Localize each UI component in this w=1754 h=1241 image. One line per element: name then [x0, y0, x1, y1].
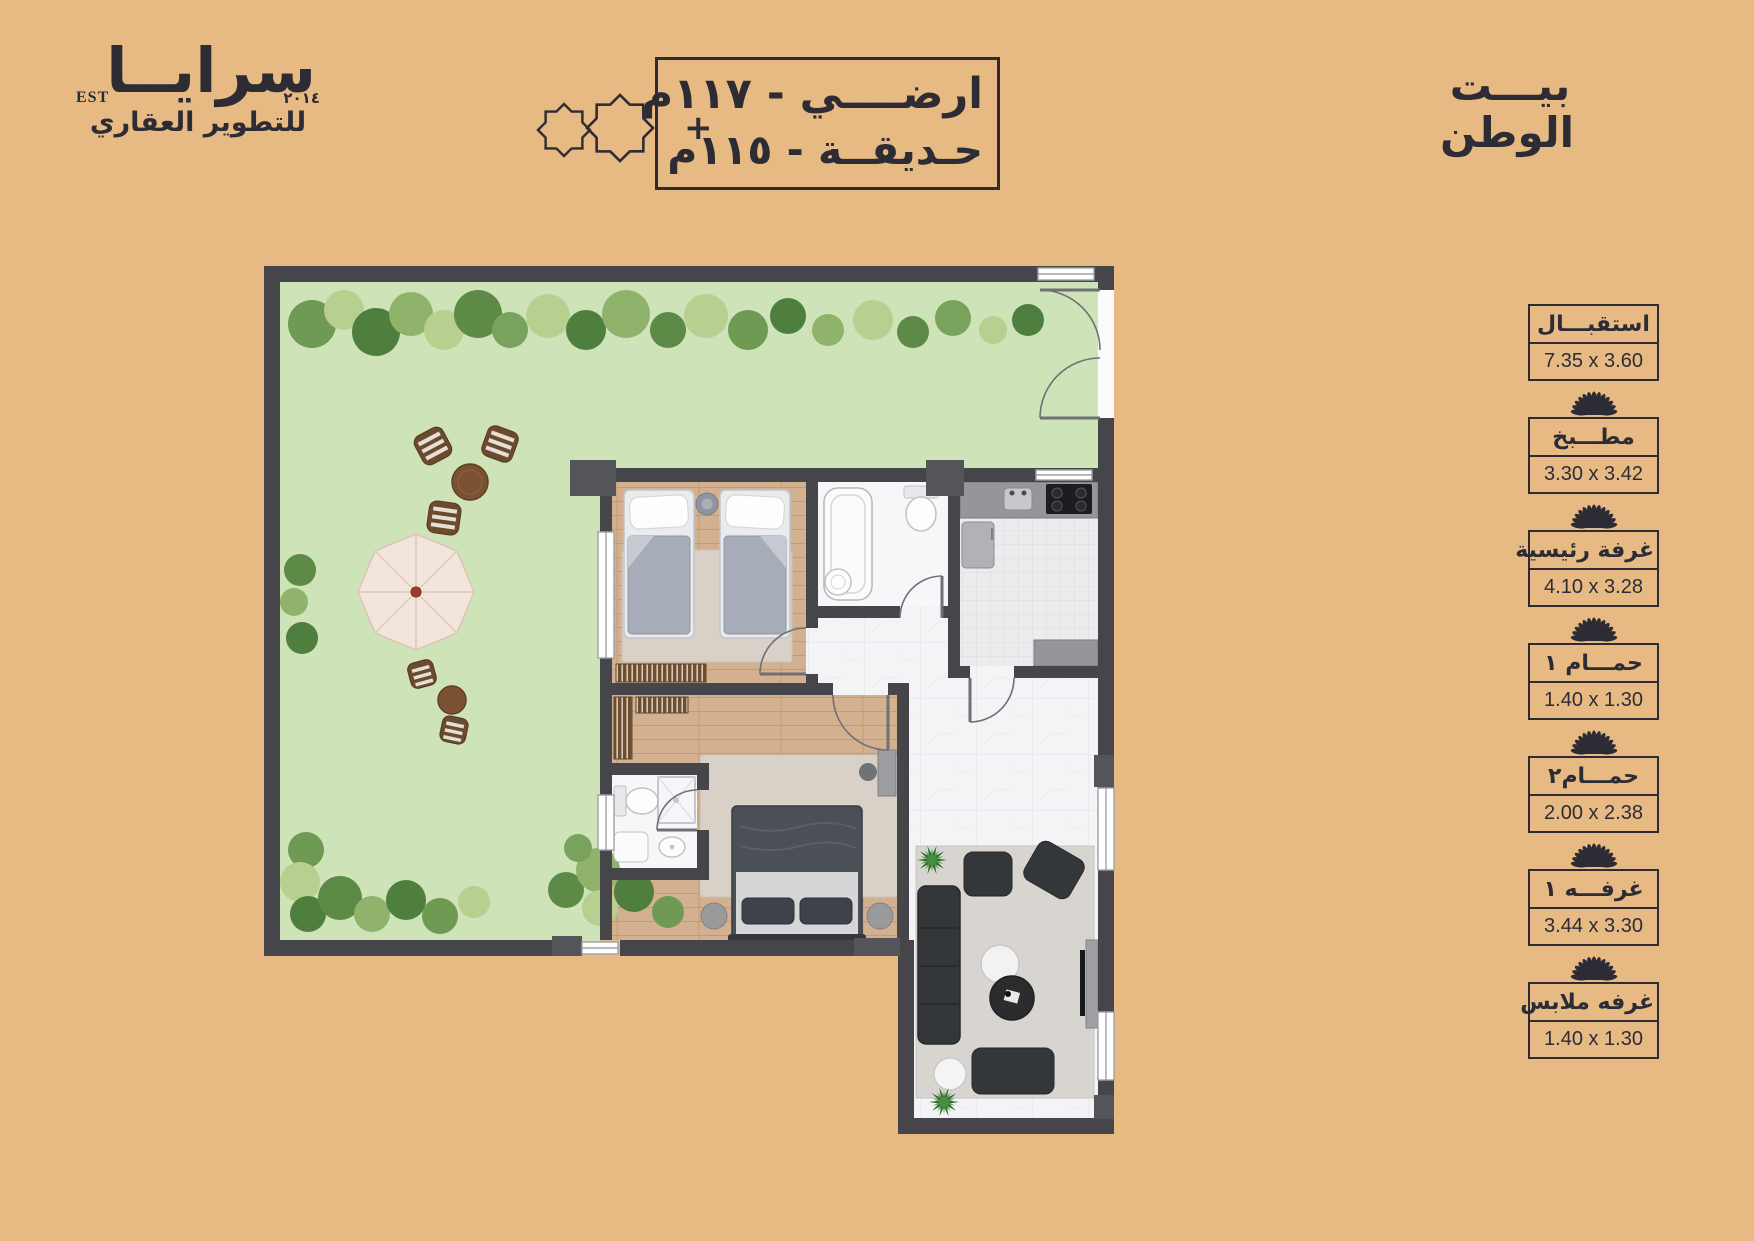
brand-line-1: بيـــت — [1446, 62, 1574, 109]
room-dimensions: 1.40 x 1.30 — [1530, 683, 1657, 718]
wardrobe — [616, 664, 706, 682]
fan-ornament-icon — [1528, 841, 1659, 868]
shower — [658, 777, 695, 823]
floor-plan — [248, 250, 1138, 1145]
room-name: غرفة رئيسية — [1530, 532, 1657, 570]
loveseat — [972, 1048, 1054, 1094]
room-dimensions: 3.30 x 3.42 — [1530, 457, 1657, 492]
room-name: غرفه ملابس — [1530, 984, 1657, 1022]
established-label: EST — [76, 89, 109, 107]
twin-bed — [720, 490, 790, 638]
room-name: حمـــام ١ — [1530, 645, 1657, 683]
room-dimensions: 1.40 x 1.30 — [1530, 1022, 1657, 1057]
twin-bed — [624, 490, 694, 638]
legend-item-reception: استقبـــال 7.35 x 3.60 — [1528, 304, 1659, 381]
coffee-table-dark — [990, 976, 1034, 1020]
area-header-box: ارضــــي - ١١٧م حـديقــة - ١١٥م + — [655, 57, 1000, 190]
reception-furniture — [916, 838, 1098, 1116]
sofa — [918, 886, 960, 1044]
side-table — [701, 903, 727, 929]
armchair — [964, 852, 1012, 896]
desk-chair — [859, 763, 877, 781]
page: سرايــا EST ٢٠١٤ للتطوير العقاري ارضــــ… — [0, 0, 1754, 1241]
legend-item-master-room: غرفة رئيسية 4.10 x 3.28 — [1528, 494, 1659, 607]
project-brand: بيـــت الوطن — [1446, 62, 1574, 156]
fan-ornament-icon — [1528, 502, 1659, 529]
cooktop — [1046, 484, 1092, 514]
tub-small — [614, 832, 648, 862]
sink — [825, 569, 851, 595]
developer-logo: سرايــا EST ٢٠١٤ للتطوير العقاري — [70, 38, 326, 138]
legend-item-bath-1: حمـــام ١ 1.40 x 1.30 — [1528, 607, 1659, 720]
double-bed — [728, 806, 866, 942]
star-icon — [538, 104, 590, 156]
decorative-stars — [536, 88, 658, 172]
fan-ornament-icon — [1528, 389, 1659, 416]
plus-sign: + — [684, 108, 713, 148]
room-name: غرفـــه ١ — [1530, 871, 1657, 909]
fan-ornament-icon — [1528, 615, 1659, 642]
room-dimensions: 2.00 x 2.38 — [1530, 796, 1657, 831]
legend-item-kitchen: مطـــبخ 3.30 x 3.42 — [1528, 381, 1659, 494]
legend-item-bath-2: حمـــام٢ 2.00 x 2.38 — [1528, 720, 1659, 833]
toilet — [614, 786, 658, 816]
fan-ornament-icon — [1528, 954, 1659, 981]
side-table — [934, 1058, 966, 1090]
room-name: حمـــام٢ — [1530, 758, 1657, 796]
kitchen-counter-2 — [1034, 640, 1098, 666]
garden-umbrella — [358, 534, 474, 650]
room-dimensions: 3.44 x 3.30 — [1530, 909, 1657, 944]
desk — [878, 750, 896, 796]
established-year: ٢٠١٤ — [283, 89, 320, 107]
developer-tagline: للتطوير العقاري — [70, 107, 326, 138]
room-name: استقبـــال — [1530, 306, 1657, 344]
fan-ornament-icon — [1528, 728, 1659, 755]
room-dimensions: 7.35 x 3.60 — [1530, 344, 1657, 379]
side-table — [867, 903, 893, 929]
fridge — [962, 522, 994, 568]
legend-item-room-1: غرفـــه ١ 3.44 x 3.30 — [1528, 833, 1659, 946]
brand-line-2: الوطن — [1446, 109, 1574, 156]
room-name: مطـــبخ — [1530, 419, 1657, 457]
tv-unit — [1080, 940, 1098, 1028]
sink — [659, 837, 685, 857]
kitchen-sink — [1004, 488, 1032, 510]
room-legend: استقبـــال 7.35 x 3.60 مطـــبخ 3.30 x 3.… — [1528, 304, 1659, 1059]
room-dimensions: 4.10 x 3.28 — [1530, 570, 1657, 605]
legend-item-dressing-room: غرفه ملابس 1.40 x 1.30 — [1528, 946, 1659, 1059]
